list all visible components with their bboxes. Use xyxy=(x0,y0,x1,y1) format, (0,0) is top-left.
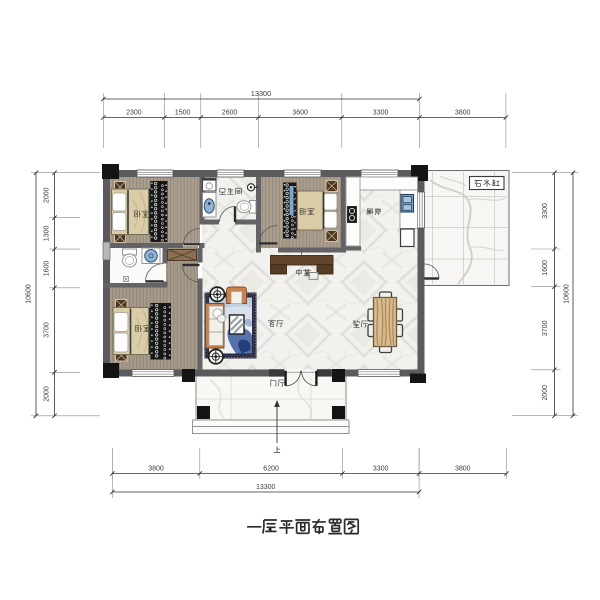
svg-text:2000: 2000 xyxy=(44,386,51,402)
svg-text:3800: 3800 xyxy=(148,466,164,473)
svg-text:6200: 6200 xyxy=(263,466,279,473)
svg-text:1500: 1500 xyxy=(175,110,191,117)
svg-text:13300: 13300 xyxy=(251,89,272,98)
svg-text:3800: 3800 xyxy=(455,110,471,117)
svg-text:1600: 1600 xyxy=(44,261,51,277)
svg-text:3700: 3700 xyxy=(542,320,549,336)
svg-text:3700: 3700 xyxy=(44,322,51,338)
svg-text:3600: 3600 xyxy=(292,110,308,117)
svg-text:10600: 10600 xyxy=(26,284,33,304)
svg-text:10600: 10600 xyxy=(564,284,571,304)
svg-text:2000: 2000 xyxy=(542,385,549,401)
svg-text:2300: 2300 xyxy=(126,110,142,117)
svg-text:3800: 3800 xyxy=(455,466,471,473)
svg-text:2000: 2000 xyxy=(44,187,51,203)
svg-text:13300: 13300 xyxy=(256,484,276,491)
svg-text:1600: 1600 xyxy=(542,260,549,276)
svg-text:1300: 1300 xyxy=(44,226,51,242)
svg-text:3300: 3300 xyxy=(373,466,389,473)
svg-text:2600: 2600 xyxy=(222,110,238,117)
svg-text:3300: 3300 xyxy=(373,110,389,117)
svg-text:3300: 3300 xyxy=(542,203,549,219)
